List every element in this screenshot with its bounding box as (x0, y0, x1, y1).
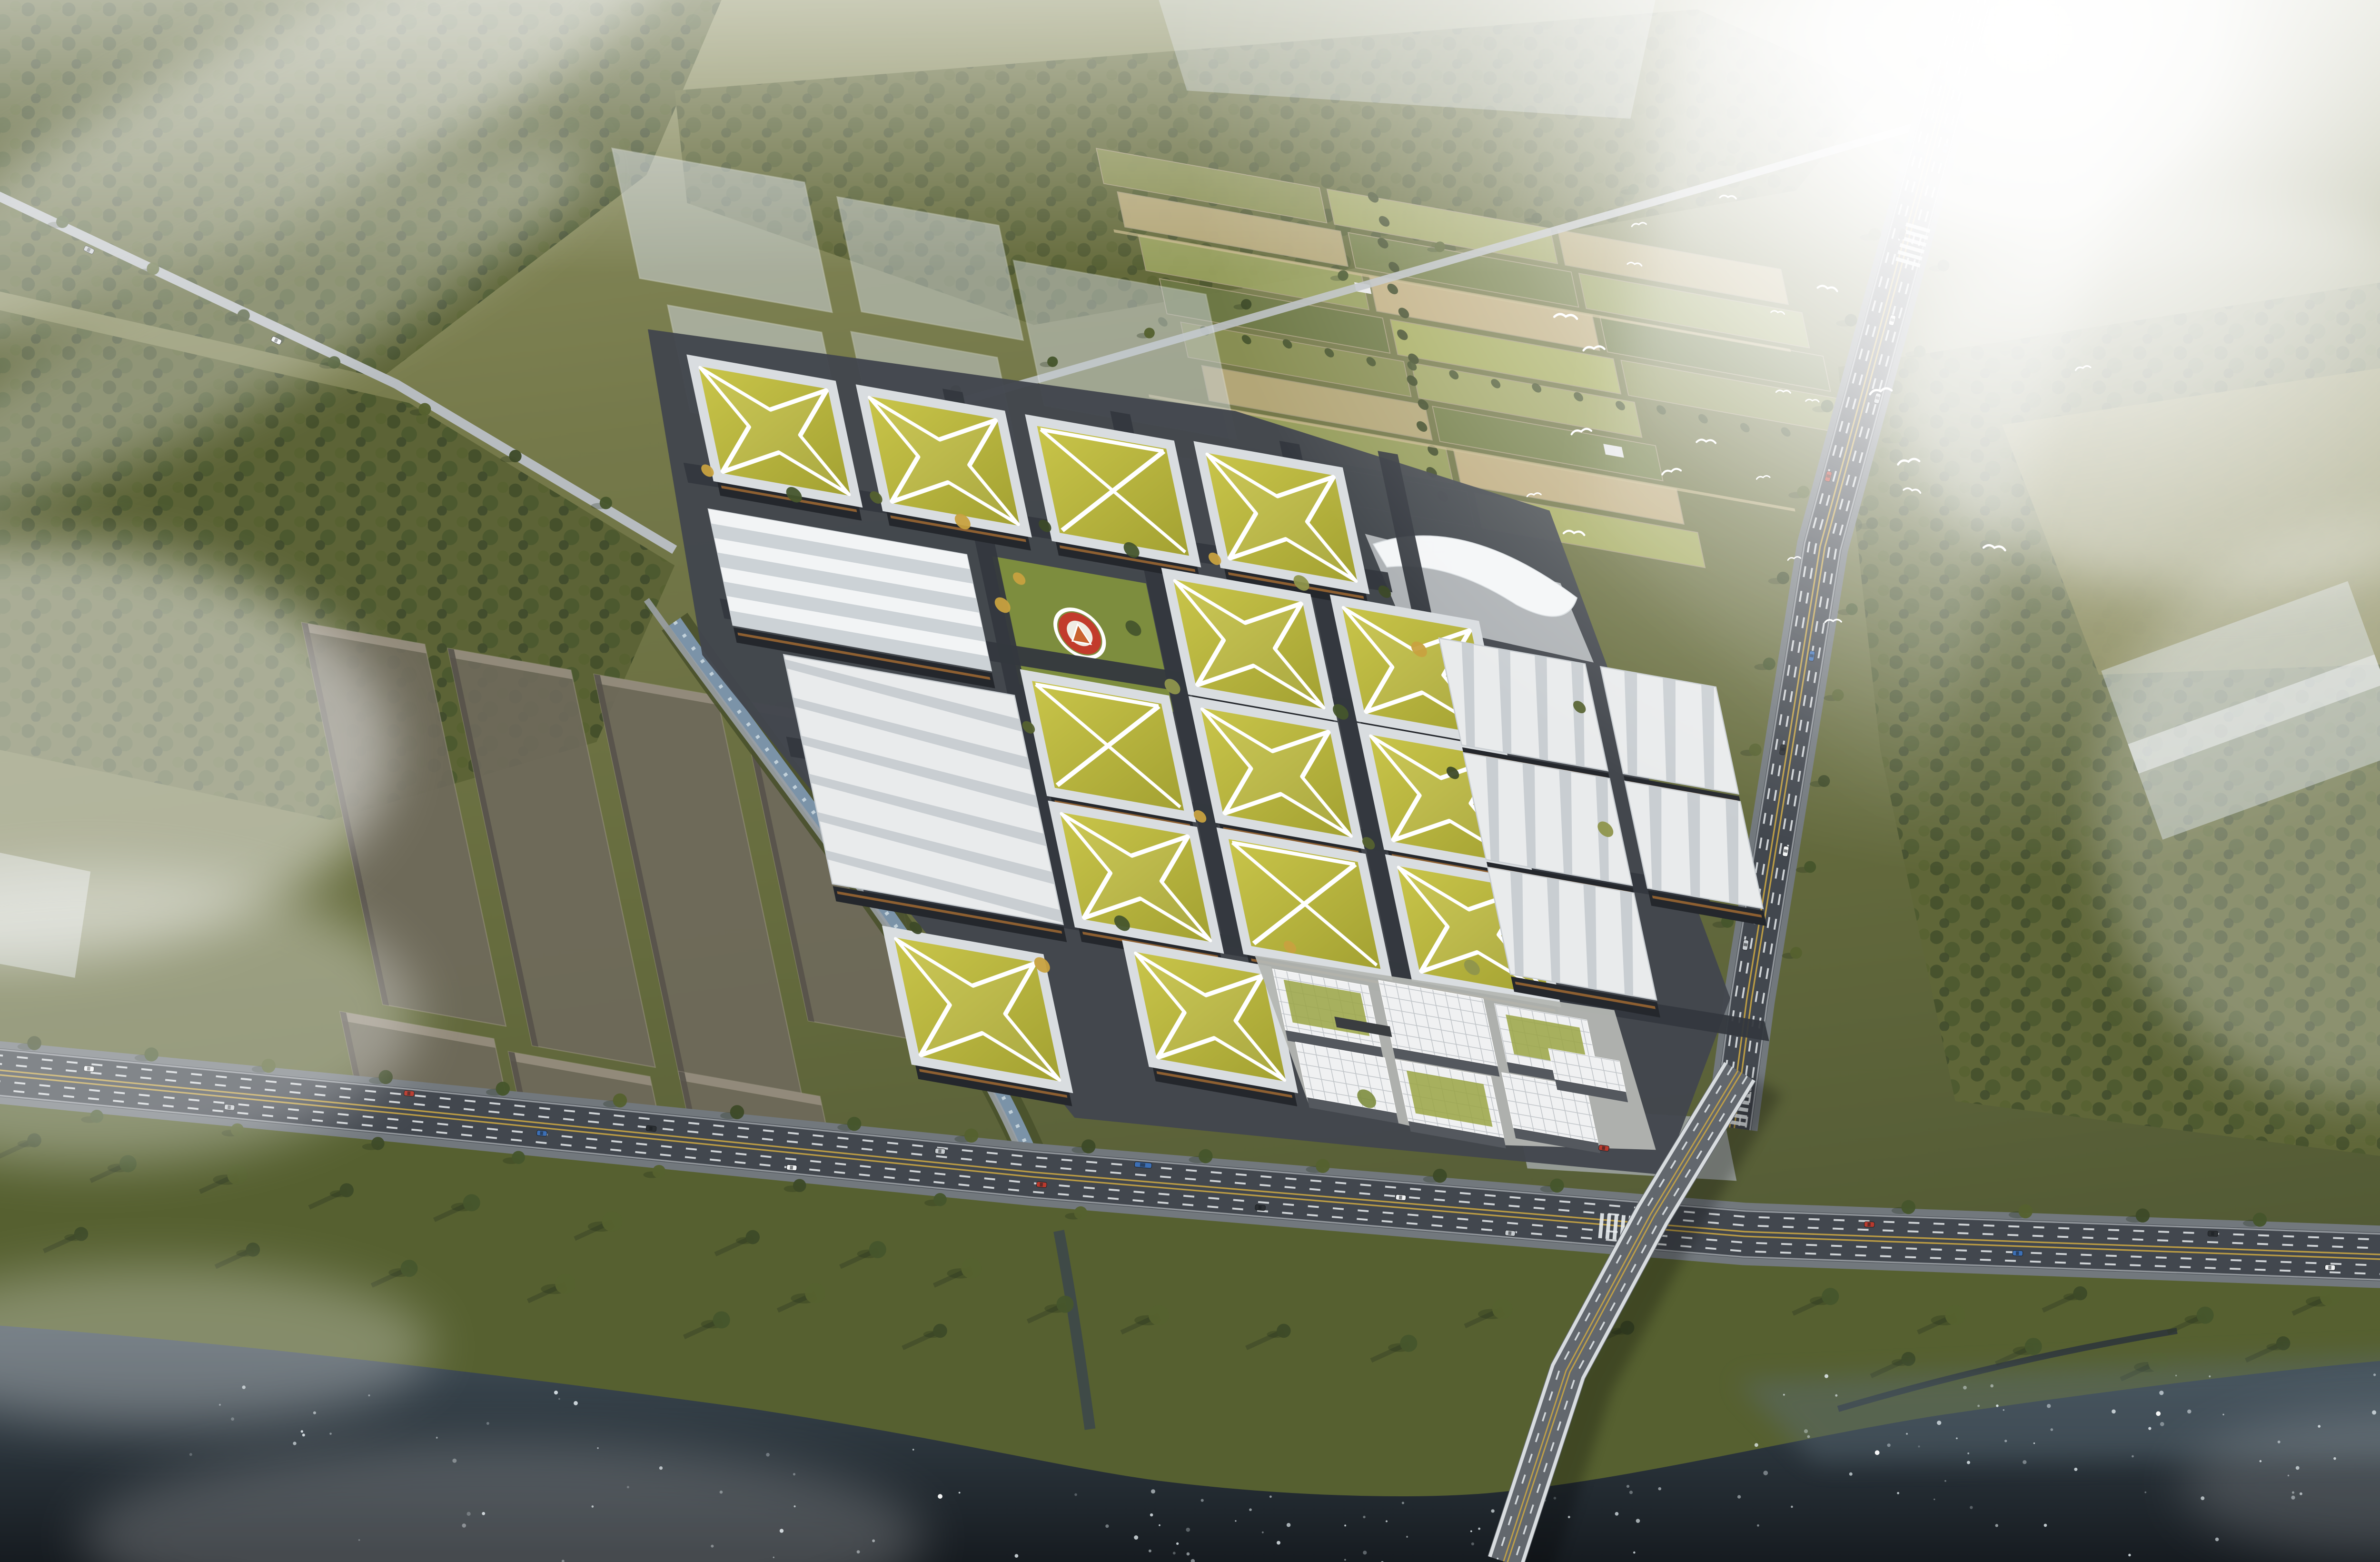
tree-shadow (1233, 304, 1247, 309)
car-glass (2328, 1265, 2331, 1269)
water-sparkle (1757, 1524, 1759, 1527)
tree-shadow (588, 1222, 614, 1232)
roof-path-pattern (1232, 843, 1377, 965)
tree-shadow (228, 316, 245, 322)
car-glass (1826, 474, 1831, 478)
water-sparkle (1344, 1559, 1346, 1561)
tree-long-shadow (1371, 1343, 1409, 1361)
warehouse-gable-band (714, 538, 976, 598)
building-facade (1511, 976, 1660, 1017)
farm-tree-row (1425, 466, 1438, 478)
campus-tree (1410, 640, 1428, 658)
water-sparkle (1937, 1421, 1941, 1425)
water-sparkle (1934, 1499, 1935, 1500)
water-sparkle (301, 1430, 303, 1433)
campus-tree (1331, 703, 1350, 721)
water-sparkle (1626, 1485, 1629, 1488)
tree-long-shadow (2246, 1343, 2283, 1361)
tree (1492, 1299, 1513, 1319)
car-body (1782, 846, 1789, 857)
tree-shadow (1621, 189, 1635, 195)
roads (0, 0, 2380, 1282)
canal-outflow (1059, 1231, 1090, 1429)
ghost-block-east (2101, 581, 2380, 840)
car (1134, 1162, 1152, 1168)
farm-tree-row (1416, 420, 1428, 433)
tree-shadow (1929, 266, 1944, 271)
car-glass (1040, 1183, 1043, 1186)
water-sparkle (2292, 1491, 2294, 1493)
building-facade (1051, 795, 1195, 836)
water-sparkle (1470, 1531, 1472, 1532)
tree (1916, 56, 1928, 69)
crosswalk-bar (1606, 1214, 1611, 1239)
farm-tree-row (1378, 215, 1391, 228)
tree-shadow (857, 1250, 879, 1258)
water-sparkle (2291, 1496, 2295, 1500)
factory-hall (1487, 867, 1656, 1000)
water-sparkle (1887, 1443, 1891, 1447)
farm-plot (1244, 452, 1474, 527)
highway-verge (0, 1067, 2380, 1259)
tree-long-shadow (1028, 1304, 1065, 1322)
reserve-plot-side (448, 648, 538, 1047)
building-facade (1224, 567, 1368, 607)
tree-shadow (330, 1190, 348, 1197)
car (224, 1104, 235, 1110)
river (0, 1322, 2380, 1562)
tree-shadow (923, 1331, 942, 1338)
tree-long-shadow (1793, 1296, 1830, 1313)
car-glass (407, 1091, 410, 1095)
farm-tree-row (1367, 191, 1380, 204)
highway-edge-line (0, 1090, 2380, 1282)
tree (1961, 174, 1973, 186)
water-sparkle (329, 1433, 332, 1435)
tree-shadow (1836, 320, 1852, 327)
car-body (1779, 744, 1786, 755)
tree (1433, 1169, 1447, 1183)
reserve-plot (740, 700, 932, 1043)
top-haze (0, 0, 2380, 273)
tree (2276, 1336, 2291, 1351)
car-glass (2016, 1251, 2019, 1255)
crosswalk-bar (1727, 1076, 1753, 1084)
housing-grid-facade (1378, 980, 1497, 1066)
highway-edge-line (0, 1044, 2380, 1236)
tree (27, 1133, 41, 1147)
building-facade (1462, 747, 1612, 788)
bird-icon (1632, 222, 1646, 226)
building-facade (734, 627, 995, 688)
tree (847, 1117, 862, 1131)
water-sparkle (436, 1437, 438, 1439)
bird-icon (1554, 314, 1577, 319)
forest-ground-west (0, 297, 674, 820)
bird-icon (1787, 557, 1800, 560)
car-glass (1258, 1205, 1261, 1209)
water-sparkle (1471, 1542, 1474, 1545)
car-body (1808, 651, 1815, 662)
water-sparkle (554, 1391, 558, 1394)
tree (869, 1241, 886, 1258)
roof-path-pattern (896, 939, 1059, 1080)
sawtooth-stripe (1602, 887, 1655, 1000)
highway-lane-marking (0, 1058, 2380, 1251)
tree-shadow (1788, 492, 1805, 498)
car (1942, 143, 1949, 154)
tree (371, 1137, 385, 1150)
junction-plaza (1515, 1106, 1736, 1181)
tree (1277, 1324, 1291, 1338)
factory-hall (1625, 781, 1763, 908)
tree-shadow (837, 1124, 855, 1131)
car-glass (1940, 68, 1944, 72)
tree-shadow (18, 1043, 36, 1050)
tree-shadow (1931, 1315, 1957, 1325)
warehouse-gable-band (730, 611, 991, 671)
bird-icon (1904, 488, 1921, 493)
crosswalk (1895, 222, 1930, 268)
crosswalk-bar (1725, 1090, 1751, 1098)
vehicles (83, 65, 2335, 1271)
tree (1901, 1352, 1915, 1366)
farm-plot (1139, 235, 1369, 310)
car (646, 1125, 656, 1132)
water-sparkle (2159, 1391, 2163, 1395)
farm-plot (1160, 279, 1390, 353)
car-glass (1810, 654, 1814, 658)
farm-tree-row (1241, 334, 1252, 345)
tree-shadow (1478, 1309, 1504, 1319)
farmland (1095, 143, 1887, 600)
water-sparkle (1755, 1443, 1758, 1447)
reserve-plot (678, 1071, 833, 1160)
campus-tree (1361, 836, 1376, 850)
fog-west (0, 539, 394, 961)
car (1874, 393, 1881, 404)
tree (1047, 357, 1058, 367)
forest-ground-nw (0, 0, 722, 378)
highway-median-line (0, 1065, 2380, 1257)
water-sparkle (1906, 1433, 1908, 1435)
tree-shadow (2243, 1220, 2261, 1227)
tree-shadow (1837, 609, 1853, 615)
tree (602, 1211, 623, 1232)
car-glass (1602, 1146, 1605, 1150)
car-body (2208, 1231, 2218, 1236)
facade-copper-louvers (1392, 854, 1528, 881)
tree-shadow (1905, 351, 1921, 357)
tree-shadow (1860, 234, 1876, 240)
farm-plot (1579, 273, 1809, 348)
water-sparkle (2074, 1468, 2077, 1471)
fog-northeast (1893, 203, 2380, 594)
water-sparkle (1478, 1528, 1480, 1530)
tree-shadow (2009, 1211, 2027, 1218)
car-body (1134, 1162, 1152, 1168)
car-body (1864, 1222, 1874, 1227)
river-reflection (1736, 1353, 2380, 1462)
tree-shadow (362, 1144, 379, 1150)
helipad-logo (1069, 623, 1091, 644)
star-roof-building-parapet (1385, 854, 1561, 1007)
tree-long-shadow (200, 1174, 238, 1192)
car-glass (1399, 1195, 1402, 1199)
warehouse-gable-band (717, 553, 979, 613)
canal-sparkle (674, 622, 1059, 1231)
east-road-lane-marking (1739, 0, 1981, 1129)
tree-long-shadow (309, 1190, 347, 1207)
car-glass (1784, 849, 1788, 853)
farm-tree-row (1531, 382, 1542, 393)
housing-roof-garden (1284, 980, 1370, 1036)
tree-long-shadow (715, 1237, 753, 1254)
car-glass (1900, 232, 1904, 236)
facade-copper-louvers (1628, 781, 1738, 803)
bird-icon (1897, 458, 1919, 465)
car-body (83, 245, 95, 254)
tree-shadow (108, 1164, 130, 1172)
roof-path-pattern (1371, 736, 1519, 863)
sawtooth-stripe (809, 774, 1047, 846)
water-sparkle (1186, 1528, 1190, 1532)
farm-tree-row (1490, 378, 1501, 389)
water-sparkle (1849, 1472, 1853, 1476)
bird-icon (2075, 365, 2091, 370)
bird-icon (1756, 475, 1770, 479)
tree (933, 1324, 947, 1338)
forest-canopy-east (1838, 273, 2380, 1164)
modular-housing-block (1495, 1004, 1599, 1078)
car (2325, 1264, 2335, 1270)
aerial-rendering-canvas (0, 0, 2380, 1562)
car (2208, 1231, 2218, 1236)
highway-lane-marking (0, 1050, 2380, 1242)
sawtooth-stripe (1480, 646, 1533, 758)
ghost-block-east-band (2128, 655, 2380, 774)
car (1898, 229, 1906, 239)
tree-shadow (1713, 922, 1729, 928)
tree-long-shadow (2043, 1293, 2080, 1311)
tree (1901, 1200, 1915, 1214)
tree (509, 450, 521, 462)
tree-shadow (2134, 1362, 2160, 1372)
tree (1763, 657, 1775, 670)
farm-plot (1327, 189, 1557, 264)
sawtooth-stripe (1629, 782, 1684, 895)
reserve-plots (256, 615, 968, 1214)
ghost-block-east-group (2101, 581, 2380, 840)
east-road-lane-marking (1745, 0, 1987, 1130)
facade-copper-louvers (890, 516, 1026, 542)
car-body (935, 1148, 945, 1154)
tree-long-shadow (840, 1250, 878, 1267)
tree (379, 1070, 393, 1084)
east-road-median-line (1734, 0, 1976, 1128)
farm-plot (1475, 493, 1705, 568)
green-roof (1342, 606, 1494, 736)
tree (2136, 1208, 2150, 1223)
farm-shed (1603, 444, 1624, 458)
tree-shadow (1134, 1315, 1160, 1325)
tree-shadow (1726, 836, 1743, 842)
farm-tree-row (1573, 391, 1584, 402)
tree (400, 1260, 417, 1277)
atmosphere (0, 0, 2380, 1562)
water-sparkle (959, 1492, 961, 1493)
housing-facade (1393, 1047, 1500, 1076)
tree-long-shadow (1465, 1309, 1502, 1326)
water-sparkle (1402, 1502, 1404, 1504)
star-roof-building-parapet (856, 384, 1032, 537)
crosswalk-bar (1902, 236, 1927, 247)
helipad-red-ring (1054, 609, 1105, 657)
tree (74, 1227, 89, 1241)
farm-tree-row (1437, 490, 1449, 503)
bridge-lane-marking (1514, 1076, 1747, 1562)
water-sparkle (1963, 1386, 1967, 1390)
campus-tree (908, 921, 923, 935)
water-sparkle (1995, 1524, 1998, 1527)
sun-beam (1593, 0, 2174, 844)
water-sparkle (1363, 1551, 1367, 1554)
water-sparkle (1363, 1516, 1365, 1518)
sawtooth-stripe (1529, 875, 1582, 987)
car-body (2013, 1250, 2023, 1256)
car (1396, 1194, 1406, 1201)
tree-long-shadow (216, 1250, 253, 1267)
tree-shadow (603, 1100, 621, 1107)
car-body (1505, 1230, 1515, 1236)
water-sparkle (1249, 1508, 1252, 1511)
water-sparkle (2187, 1410, 2192, 1414)
bird-icon (1776, 390, 1791, 393)
east-road-edge-line (1750, 0, 1992, 1130)
facade-copper-louvers (1364, 726, 1500, 752)
campus-tree (993, 596, 1012, 614)
farm-tree-row (1697, 413, 1708, 424)
water-sparkle (574, 1401, 578, 1405)
tree (512, 1151, 525, 1164)
campus-street (785, 731, 1711, 910)
tree-shadow (1824, 695, 1839, 701)
star-roof-building-parapet (1217, 827, 1393, 981)
housing-grid-facade (1495, 1004, 1599, 1078)
tree-shadow (1740, 750, 1756, 756)
water-sparkle (1763, 1471, 1768, 1475)
sawtooth-stripe (1517, 652, 1569, 764)
water-sparkle (1344, 1524, 1346, 1526)
canal (646, 600, 1059, 1231)
crosswalk-bar (1620, 1215, 1626, 1240)
water-sparkle (2201, 1496, 2204, 1500)
east-road-asphalt (1732, 0, 1974, 1128)
car-glass (87, 248, 91, 252)
farm-tree-row (1386, 283, 1399, 295)
tree-shadow (18, 1140, 36, 1147)
water-sparkle (466, 1512, 470, 1516)
reserve-plot-top (302, 623, 427, 654)
water-sparkle (1159, 1524, 1160, 1526)
tree (496, 1082, 510, 1096)
building-facade (1360, 720, 1505, 761)
campus-tree (1124, 619, 1142, 637)
bridge-median-line (1504, 1070, 1738, 1561)
star-roof-building-parapet (1122, 940, 1298, 1094)
water-sparkle (2044, 1524, 2047, 1527)
forest-canopy-north (674, 10, 1877, 325)
car (1505, 1230, 1515, 1236)
water-sparkle (1967, 1461, 1970, 1464)
water-sparkle (1386, 1520, 1388, 1522)
tree (231, 1124, 244, 1137)
green-roof (1037, 426, 1189, 556)
tree-shadow (1768, 578, 1784, 584)
green-roof (1134, 952, 1286, 1082)
ghost-block-far-west (0, 840, 90, 978)
building-facade (1247, 954, 1392, 994)
tree (1316, 1159, 1330, 1173)
tree-shadow (1858, 523, 1873, 529)
car-body (1255, 1204, 1266, 1211)
tree-shadow (1306, 1166, 1324, 1173)
water-sparkle (1287, 1523, 1290, 1527)
tree-shadow (643, 1172, 660, 1178)
water-sparkle (2003, 1409, 2004, 1411)
tree (1866, 517, 1878, 529)
tree-shadow (1137, 333, 1150, 338)
farm-plot (1600, 317, 1830, 391)
east-road-lane-marking (1718, 0, 1961, 1126)
star-roof-building-parapet (1193, 441, 1369, 595)
tree-long-shadow (90, 1164, 128, 1181)
water-sparkle (2300, 1492, 2302, 1495)
tree-shadow (2266, 1343, 2284, 1351)
water-sparkle (1897, 1492, 1899, 1494)
car-glass (1781, 747, 1785, 751)
farm-plot (1369, 276, 1599, 351)
reserve-plot (448, 648, 655, 1067)
tree (1400, 1335, 1417, 1352)
car (1938, 65, 1946, 76)
bird-icon (1627, 262, 1642, 266)
water-sparkle (1176, 1542, 1179, 1545)
campus-tree (1292, 574, 1310, 592)
car-glass (1744, 943, 1748, 947)
modular-housing-block (1295, 1042, 1396, 1113)
water-sparkle (1491, 1509, 1494, 1512)
reserve-plot-side (594, 674, 686, 1080)
tree-shadow (1071, 1146, 1090, 1154)
east-road-verge (1732, 0, 1974, 1128)
bird-icon (1805, 399, 1819, 402)
tree-shadow (1812, 406, 1828, 412)
crosswalk-bar (1895, 257, 1921, 268)
farm-tree-row (1366, 356, 1377, 367)
water-sparkle (242, 1385, 246, 1389)
star-roof-building-parapet (882, 925, 1073, 1093)
water-sparkle (1269, 1495, 1272, 1498)
building-facade (833, 886, 1067, 942)
car (1255, 1204, 1266, 1211)
crosswalk-bar (1726, 1083, 1752, 1091)
reserve-plot-top (594, 674, 719, 705)
tree (339, 1183, 354, 1197)
facade-copper-louvers (1060, 545, 1196, 572)
tree (730, 1105, 744, 1119)
bird-icon (1696, 439, 1716, 443)
